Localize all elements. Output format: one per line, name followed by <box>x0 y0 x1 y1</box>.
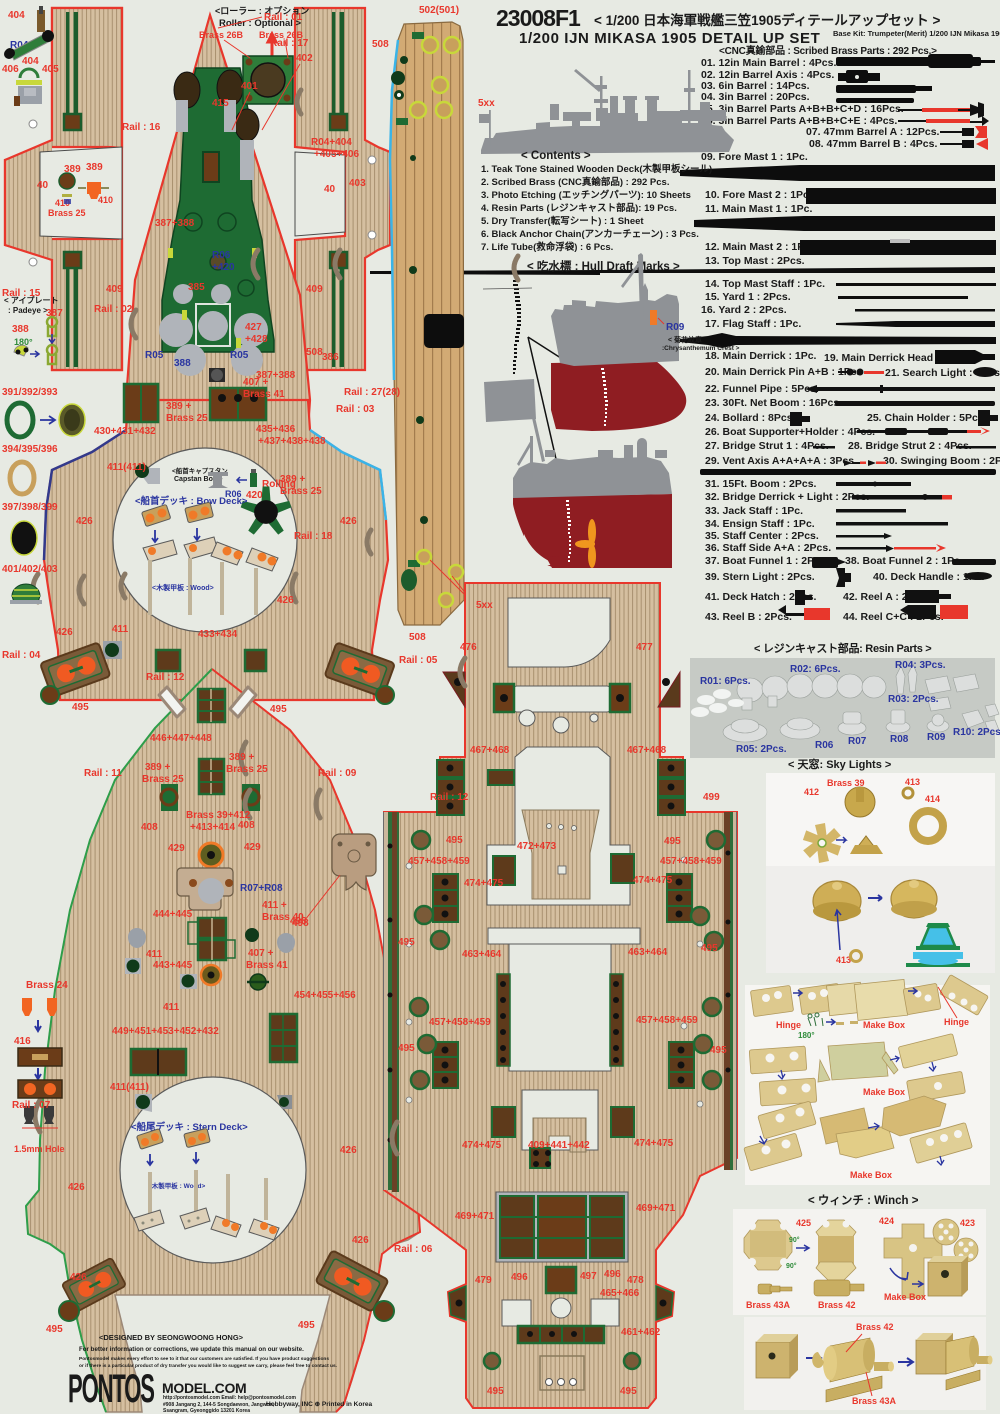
svg-text:Rail : 09: Rail : 09 <box>318 768 357 779</box>
svg-text:Rail : 04: Rail : 04 <box>2 650 41 661</box>
svg-text:29. Vent Axis A+A+A+A : 3Pcs.: 29. Vent Axis A+A+A+A : 3Pcs. <box>705 455 857 467</box>
svg-text:495: 495 <box>701 943 718 954</box>
svg-text:26. Boat Supporter+Holder : 4P: 26. Boat Supporter+Holder : 4Pcs. <box>705 426 875 438</box>
svg-text:Make Box: Make Box <box>850 1170 892 1180</box>
svg-text:Brass 25: Brass 25 <box>280 486 322 497</box>
svg-text:R06: R06 <box>212 250 231 261</box>
svg-text:463+464: 463+464 <box>462 949 502 960</box>
svg-text:R06: R06 <box>815 740 834 751</box>
svg-text:479: 479 <box>475 1275 492 1286</box>
svg-text:415: 415 <box>212 98 229 109</box>
svg-text:427: 427 <box>245 322 262 333</box>
svg-text:Rail : 16: Rail : 16 <box>122 122 161 133</box>
svg-text:+428: +428 <box>245 334 268 345</box>
svg-text:423: 423 <box>960 1218 975 1228</box>
svg-text:90°: 90° <box>789 1236 800 1244</box>
svg-text:420: 420 <box>246 490 263 501</box>
svg-text:426: 426 <box>277 595 294 606</box>
svg-text:386: 386 <box>322 352 339 363</box>
svg-text:Brass 39+412: Brass 39+412 <box>186 810 251 821</box>
svg-text:476: 476 <box>460 642 477 653</box>
svg-text:< レジンキャスト部品: Resin Parts >: < レジンキャスト部品: Resin Parts > <box>754 641 931 655</box>
svg-text:13. Top Mast : 2Pcs.: 13. Top Mast : 2Pcs. <box>705 255 805 267</box>
svg-text:30. Swinging Boom : 2Pcs.: 30. Swinging Boom : 2Pcs. <box>883 455 1000 467</box>
svg-text:R04+404: R04+404 <box>311 137 352 148</box>
svg-text:457+458+459: 457+458+459 <box>429 1017 491 1028</box>
svg-text:426: 426 <box>340 516 357 527</box>
svg-text:389 +: 389 + <box>280 474 305 485</box>
svg-text:387+388: 387+388 <box>155 218 195 229</box>
svg-text:457+458+459: 457+458+459 <box>408 856 470 867</box>
svg-text:414: 414 <box>925 794 940 804</box>
svg-text:< 菊花紋章: < 菊花紋章 <box>668 335 702 344</box>
svg-text:446+447+448: 446+447+448 <box>150 733 212 744</box>
svg-text:09. Fore Mast 1 : 1Pc.: 09. Fore Mast 1 : 1Pc. <box>701 151 808 163</box>
svg-text:< 1/200 日本海軍戦艦三笠1905ディテールアップセッ: < 1/200 日本海軍戦艦三笠1905ディテールアップセット > <box>594 12 941 28</box>
svg-text:MODEL.COM: MODEL.COM <box>162 1380 246 1396</box>
svg-text:1.5mm Hole: 1.5mm Hole <box>14 1144 65 1154</box>
svg-text:35. Staff Center : 2Pcs.: 35. Staff Center : 2Pcs. <box>705 530 819 542</box>
svg-text:23. 30Ft. Net Boom : 16Pcs.: 23. 30Ft. Net Boom : 16Pcs. <box>705 397 842 409</box>
svg-text:6. Black Anchor Chain(アンカーチェーン: 6. Black Anchor Chain(アンカーチェーン) : 3 Pcs. <box>481 229 699 240</box>
svg-text:430+431+432: 430+431+432 <box>94 426 156 437</box>
svg-text:Rail : 03: Rail : 03 <box>336 404 375 415</box>
svg-text:495: 495 <box>270 704 287 715</box>
svg-text:01. 12in Main Barrel : 4Pcs.: 01. 12in Main Barrel : 4Pcs. <box>701 57 836 69</box>
svg-text:Hinge: Hinge <box>776 1020 801 1030</box>
svg-text:40: 40 <box>37 180 49 191</box>
svg-text:389 +: 389 + <box>229 752 254 763</box>
svg-text:Make Box: Make Box <box>863 1087 905 1097</box>
svg-text:R01: 6Pcs.: R01: 6Pcs. <box>700 676 751 687</box>
svg-text:27. Bridge Strut 1 : 4Pcs.: 27. Bridge Strut 1 : 4Pcs. <box>705 440 829 452</box>
svg-text:3. Photo Etching (エッチングパーツ): 1: 3. Photo Etching (エッチングパーツ): 10 Sheets <box>481 189 691 201</box>
svg-text:Brass 41: Brass 41 <box>246 960 288 971</box>
svg-text:< ウィンチ : Winch >: < ウィンチ : Winch > <box>808 1194 919 1207</box>
svg-text:< 天窓: Sky Lights >: < 天窓: Sky Lights > <box>788 757 891 771</box>
svg-text:<木製甲板 : Wood>: <木製甲板 : Wood> <box>152 583 214 592</box>
svg-text:411: 411 <box>163 1002 180 1013</box>
svg-text:Rail : 05: Rail : 05 <box>399 655 438 666</box>
svg-text:37. Boat Funnel 1 : 2Pcs.: 37. Boat Funnel 1 : 2Pcs. <box>705 555 829 567</box>
svg-text:429: 429 <box>244 842 261 853</box>
svg-text:403: 403 <box>349 178 366 189</box>
svg-text:PONTOS: PONTOS <box>68 1366 155 1411</box>
svg-text:<CNC真鍮部品 : Scribed Brass Parts: <CNC真鍮部品 : Scribed Brass Parts : 292 Pcs… <box>719 44 937 57</box>
svg-text:05. 3in Barrel Parts A+B+B+C+D: 05. 3in Barrel Parts A+B+B+C+D : 16Pcs. <box>701 103 904 115</box>
svg-text:408: 408 <box>141 822 158 833</box>
svg-text:7. Life Tube(救命浮袋) : 6 Pcs.: 7. Life Tube(救命浮袋) : 6 Pcs. <box>481 241 613 253</box>
svg-text:407 +: 407 + <box>248 948 273 959</box>
svg-text:404: 404 <box>22 56 39 67</box>
svg-text:R05: R05 <box>145 350 164 361</box>
svg-text:23008F1: 23008F1 <box>496 5 581 31</box>
svg-text:469+471: 469+471 <box>636 1203 676 1214</box>
svg-text:411(411): 411(411) <box>107 462 146 473</box>
svg-text:435+436: 435+436 <box>256 424 296 435</box>
svg-text:413: 413 <box>836 955 851 965</box>
svg-text:454+455+456: 454+455+456 <box>294 990 356 1001</box>
svg-text:34. Ensign Staff : 1Pc.: 34. Ensign Staff : 1Pc. <box>705 518 815 530</box>
svg-text:409: 409 <box>306 284 323 295</box>
svg-text:Rail : 15: Rail : 15 <box>2 288 41 299</box>
svg-text:508: 508 <box>372 39 389 50</box>
svg-text:Brass 24: Brass 24 <box>26 980 68 991</box>
svg-text:401/402/403: 401/402/403 <box>2 564 58 575</box>
svg-text:461+462: 461+462 <box>621 1327 661 1338</box>
svg-text:474+475: 474+475 <box>464 878 504 889</box>
svg-text:07. 47mm Barrel A : 12Pcs.: 07. 47mm Barrel A : 12Pcs. <box>806 126 940 138</box>
svg-text:R08: R08 <box>890 734 909 745</box>
svg-text:412: 412 <box>804 787 819 797</box>
svg-text:22. Funnel Pipe : 5Pcs.: 22. Funnel Pipe : 5Pcs. <box>705 383 819 395</box>
svg-text:425: 425 <box>796 1218 811 1228</box>
svg-text:R09: R09 <box>927 732 946 743</box>
svg-text:1/200 IJN MIKASA 1905 DETAIL U: 1/200 IJN MIKASA 1905 DETAIL UP SET <box>519 30 820 47</box>
svg-text:444+445: 444+445 <box>153 909 193 920</box>
svg-text:+437+438+438: +437+438+438 <box>258 436 326 447</box>
svg-text:R10: 2Pcs.: R10: 2Pcs. <box>953 727 1000 738</box>
svg-text:385: 385 <box>188 282 205 293</box>
svg-text:389: 389 <box>86 162 103 173</box>
svg-text:R03: 2Pcs.: R03: 2Pcs. <box>888 694 939 705</box>
svg-text:<船尾デッキ : Stern Deck>: <船尾デッキ : Stern Deck> <box>131 1121 248 1133</box>
svg-text:495: 495 <box>487 1386 504 1397</box>
svg-text:R02: 6Pcs.: R02: 6Pcs. <box>790 664 841 675</box>
svg-text:457+458+459: 457+458+459 <box>636 1015 698 1026</box>
svg-text:443+445: 443+445 <box>153 960 193 971</box>
svg-text:1. Teak Tone Stained Wooden De: 1. Teak Tone Stained Wooden Deck(木製甲板シール… <box>481 163 712 175</box>
svg-text:405: 405 <box>42 64 59 75</box>
svg-text:496: 496 <box>511 1272 528 1283</box>
svg-text:388: 388 <box>12 324 29 335</box>
svg-text:31. 15Ft. Boom : 2Pcs.: 31. 15Ft. Boom : 2Pcs. <box>705 478 817 490</box>
svg-text:33. Jack Staff : 1Pc.: 33. Jack Staff : 1Pc. <box>705 505 803 517</box>
svg-text:474+475: 474+475 <box>633 875 673 886</box>
svg-text:394/395/396: 394/395/396 <box>2 444 58 455</box>
svg-text:Make Box: Make Box <box>884 1292 926 1302</box>
svg-text:426: 426 <box>56 627 73 638</box>
svg-text:Brass 25: Brass 25 <box>142 774 184 785</box>
svg-text:502(501): 502(501) <box>419 5 459 16</box>
svg-text:32. Bridge Derrick + Light : 2: 32. Bridge Derrick + Light : 2Pcs. <box>705 491 869 503</box>
svg-text:R05: 2Pcs.: R05: 2Pcs. <box>736 744 787 755</box>
svg-text:424: 424 <box>879 1216 894 1226</box>
svg-text:467+468: 467+468 <box>627 745 667 756</box>
svg-text:36. Staff Side A+A : 2Pcs.: 36. Staff Side A+A : 2Pcs. <box>705 542 831 554</box>
svg-text:<DESIGNED BY SEONGWOONG HONG>: <DESIGNED BY SEONGWOONG HONG> <box>99 1333 244 1342</box>
svg-text:+420: +420 <box>212 262 235 273</box>
svg-text:4. Resin Parts (レジンキャスト部品): 19: 4. Resin Parts (レジンキャスト部品): 19 Pcs. <box>481 202 677 214</box>
svg-text:457+458+459: 457+458+459 <box>660 856 722 867</box>
svg-text:Rail : 18: Rail : 18 <box>294 531 333 542</box>
svg-text:465+466: 465+466 <box>600 1288 640 1299</box>
svg-text:16. Yard 2 : 2Pcs.: 16. Yard 2 : 2Pcs. <box>701 304 787 316</box>
svg-text:15. Yard 1 : 2Pcs.: 15. Yard 1 : 2Pcs. <box>705 291 791 303</box>
svg-text:463+464: 463+464 <box>628 947 668 958</box>
svg-text:495: 495 <box>298 1320 315 1331</box>
svg-text:426: 426 <box>70 1272 87 1283</box>
svg-text:426: 426 <box>352 1235 369 1246</box>
svg-text:Pontosmodel makes every effort: Pontosmodel makes every effort to see to… <box>79 1356 329 1362</box>
svg-text:90°: 90° <box>786 1262 797 1270</box>
svg-text:389 +: 389 + <box>166 401 191 412</box>
svg-text:Rail : 01: Rail : 01 <box>264 12 303 23</box>
svg-text:474+475: 474+475 <box>634 1138 674 1149</box>
svg-text:495: 495 <box>710 1045 727 1056</box>
svg-text:R05: R05 <box>230 350 249 361</box>
svg-text:R07: R07 <box>848 736 867 747</box>
svg-text:Rail : 12: Rail : 12 <box>430 792 469 803</box>
svg-text:5xx: 5xx <box>476 600 493 611</box>
svg-text:25. Chain Holder : 5Pcs.: 25. Chain Holder : 5Pcs. <box>867 412 987 424</box>
svg-text:411(411): 411(411) <box>110 1082 149 1093</box>
svg-text:388: 388 <box>174 358 191 369</box>
svg-text:08. 47mm Barrel B : 4Pcs.: 08. 47mm Barrel B : 4Pcs. <box>809 138 937 150</box>
svg-text:401: 401 <box>241 81 258 92</box>
svg-text:508: 508 <box>306 347 323 358</box>
svg-text:Ssangram, Gyeonggido 13201 Ko: Ssangram, Gyeonggido 13201 Korea <box>163 1408 250 1414</box>
svg-text:< Contents >: < Contents > <box>521 150 591 162</box>
svg-text:391/392/393: 391/392/393 <box>2 387 58 398</box>
svg-text:R07+R08: R07+R08 <box>240 883 283 894</box>
svg-text:11. Main Mast 1 : 1Pc.: 11. Main Mast 1 : 1Pc. <box>705 203 812 215</box>
svg-text:449+451+453+452+432: 449+451+453+452+432 <box>112 1026 219 1037</box>
svg-text:38. Boat Funnel 2 : 1Pc.: 38. Boat Funnel 2 : 1Pc. <box>845 555 963 567</box>
svg-text:497: 497 <box>580 1271 597 1282</box>
svg-text:: Padeye >: : Padeye > <box>8 306 48 315</box>
svg-text:426: 426 <box>76 516 93 527</box>
svg-text:408: 408 <box>238 820 255 831</box>
svg-text:40: 40 <box>324 184 336 195</box>
svg-text:180°: 180° <box>798 1031 815 1040</box>
svg-text:402: 402 <box>296 53 313 64</box>
svg-text:474+475: 474+475 <box>462 1140 502 1151</box>
svg-text:5. Dry Transfer(転写シート) : 1 She: 5. Dry Transfer(転写シート) : 1 Sheet <box>481 215 644 227</box>
svg-text:406: 406 <box>2 64 19 75</box>
svg-text:495: 495 <box>446 835 463 846</box>
svg-text:411 +: 411 + <box>262 900 287 911</box>
svg-text:Rail : 17: Rail : 17 <box>270 38 309 49</box>
svg-text:413: 413 <box>905 777 920 787</box>
svg-text:496: 496 <box>604 1269 621 1280</box>
svg-text:Make Box: Make Box <box>863 1020 905 1030</box>
svg-text:Brass 41: Brass 41 <box>243 389 285 400</box>
svg-text:429: 429 <box>168 843 185 854</box>
svg-text:For better information or corr: For better information or corrections, w… <box>79 1346 304 1353</box>
svg-text:10. Fore Mast 2 : 1Pc.: 10. Fore Mast 2 : 1Pc. <box>705 189 812 201</box>
svg-text:426: 426 <box>340 1145 357 1156</box>
svg-text::Chrysanthemum Crest >: :Chrysanthemum Crest > <box>662 345 740 352</box>
svg-text:R04: 3Pcs.: R04: 3Pcs. <box>895 660 946 671</box>
svg-text:426: 426 <box>68 1182 85 1193</box>
svg-text:24. Bollard : 8Pcs.: 24. Bollard : 8Pcs. <box>705 412 796 424</box>
svg-text:Brass 26B: Brass 26B <box>199 30 244 40</box>
svg-text:28. Bridge Strut 2 : 4Pcs.: 28. Bridge Strut 2 : 4Pcs. <box>848 440 972 452</box>
svg-text:Rail : 02: Rail : 02 <box>94 304 133 315</box>
svg-text:+413+414: +413+414 <box>190 822 235 833</box>
svg-text:389 +: 389 + <box>145 762 170 773</box>
svg-text:Rail : 07: Rail : 07 <box>12 1100 51 1111</box>
svg-text:Rail : 11: Rail : 11 <box>84 768 122 779</box>
svg-text:14. Top Mast Staff : 1Pc.: 14. Top Mast Staff : 1Pc. <box>705 278 825 290</box>
svg-text:495: 495 <box>398 1043 415 1054</box>
svg-text:409: 409 <box>106 284 123 295</box>
svg-text:39. Stern Light : 2Pcs.: 39. Stern Light : 2Pcs. <box>705 571 815 583</box>
svg-text:<船首デッキ : Bow Deck>: <船首デッキ : Bow Deck> <box>135 495 248 507</box>
svg-text:Brass 43A: Brass 43A <box>746 1300 791 1310</box>
svg-text:416: 416 <box>14 1036 31 1047</box>
svg-text:Brass 42: Brass 42 <box>818 1300 856 1310</box>
svg-text:+405+406: +405+406 <box>314 149 359 160</box>
svg-text:411: 411 <box>112 624 129 635</box>
svg-text:472+473: 472+473 <box>517 841 557 852</box>
svg-text:12. Main Mast 2 : 1Pc.: 12. Main Mast 2 : 1Pc. <box>705 241 813 253</box>
svg-text:499: 499 <box>703 792 720 803</box>
svg-text:Hinge: Hinge <box>944 1017 969 1027</box>
svg-text:2. Scribed Brass (CNC真鍮部品) : 2: 2. Scribed Brass (CNC真鍮部品) : 292 Pcs. <box>481 176 669 188</box>
svg-text:411: 411 <box>146 949 163 960</box>
svg-text:Brass 39: Brass 39 <box>827 778 865 788</box>
svg-text:5xx: 5xx <box>478 98 495 109</box>
svg-text:Rail : 12: Rail : 12 <box>146 672 185 683</box>
svg-text:17. Flag Staff : 1Pc.: 17. Flag Staff : 1Pc. <box>705 318 801 330</box>
svg-text:20. Main Derrick Pin A+B : 1Pc: 20. Main Derrick Pin A+B : 1Pc. <box>705 366 860 378</box>
svg-text:508: 508 <box>409 632 426 643</box>
svg-text:495: 495 <box>398 937 415 948</box>
svg-text:Hobbyway, INC ⊕ Printed in Ko: Hobbyway, INC ⊕ Printed in Korea <box>266 1401 372 1408</box>
svg-text:477: 477 <box>636 642 653 653</box>
svg-text:495: 495 <box>664 836 681 847</box>
svg-text:Brass 40: Brass 40 <box>262 912 304 923</box>
svg-text:Brass 25: Brass 25 <box>48 208 86 218</box>
svg-text:Brass 25: Brass 25 <box>166 413 208 424</box>
svg-text:410: 410 <box>98 195 113 205</box>
svg-text:43. Reel B : 2Pcs.: 43. Reel B : 2Pcs. <box>705 611 792 623</box>
svg-text:< 吃水標 : Hull Draft Marks >: < 吃水標 : Hull Draft Marks > <box>527 259 680 273</box>
svg-text:404: 404 <box>8 10 25 21</box>
svg-text:467+468: 467+468 <box>470 745 510 756</box>
svg-text:Brass 25: Brass 25 <box>226 764 268 775</box>
svg-text:Base Kit: Trumpeter(Merit) 1/2: Base Kit: Trumpeter(Merit) 1/200 IJN Mik… <box>833 29 1000 38</box>
svg-text:409+441+442: 409+441+442 <box>528 1140 590 1151</box>
svg-text:495: 495 <box>620 1386 637 1397</box>
svg-text:Brass 42: Brass 42 <box>856 1322 894 1332</box>
svg-text:04. 3in Barrel : 20Pcs.: 04. 3in Barrel : 20Pcs. <box>701 91 810 103</box>
svg-text:433+434: 433+434 <box>198 629 238 640</box>
svg-text:R09: R09 <box>666 322 685 333</box>
svg-text:469+471: 469+471 <box>455 1211 495 1222</box>
svg-text:495: 495 <box>46 1324 63 1335</box>
svg-text:Rail : 06: Rail : 06 <box>394 1244 433 1255</box>
svg-text:Brass 43A: Brass 43A <box>852 1396 897 1406</box>
svg-text:Rail : 27(28): Rail : 27(28) <box>344 387 400 398</box>
svg-text:495: 495 <box>72 702 89 713</box>
svg-text:478: 478 <box>627 1275 644 1286</box>
svg-text:387+388: 387+388 <box>256 370 296 381</box>
svg-text:397/398/399: 397/398/399 <box>2 502 58 513</box>
